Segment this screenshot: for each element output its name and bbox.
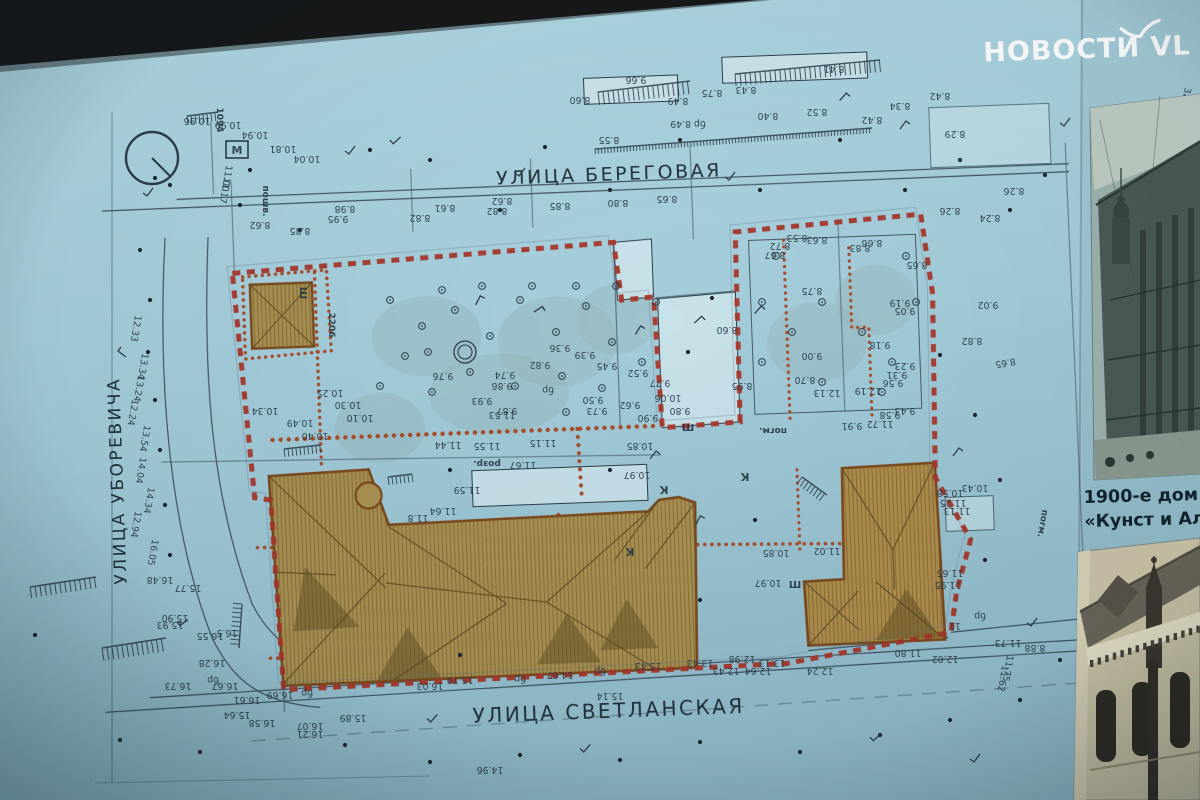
site-plan-slide: УЛИЦА БЕРЕГОВАЯ УЛИЦА СВЕТЛАНСКАЯ УЛИЦА … [0, 0, 1200, 800]
projected-slide-photo: УЛИЦА БЕРЕГОВАЯ УЛИЦА СВЕТЛАНСКАЯ УЛИЦА … [0, 0, 1200, 800]
vignette [0, 0, 1200, 800]
